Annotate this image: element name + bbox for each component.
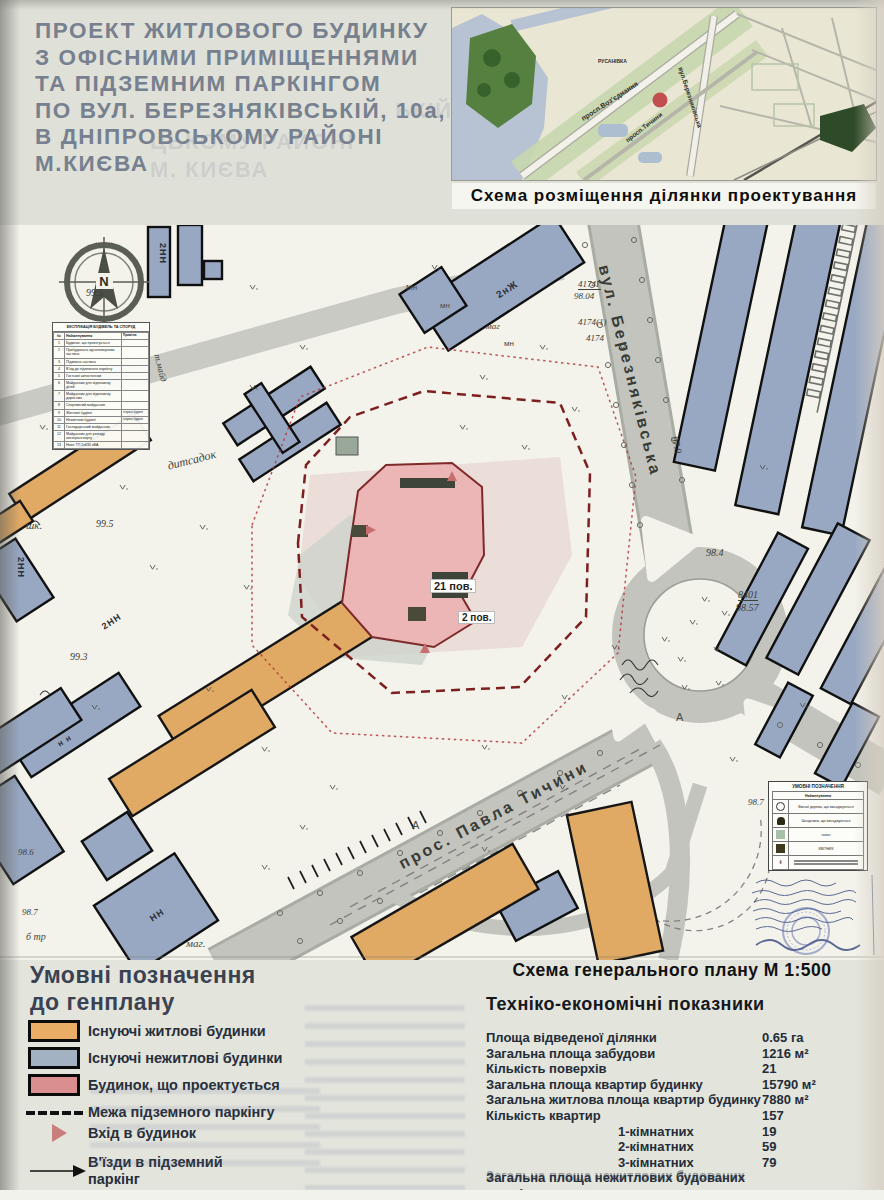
legend-item-label: Існуючі нежитлові будинки (88, 1050, 282, 1067)
explication-cell (122, 340, 149, 347)
tep-row: приміщень (486, 1186, 882, 1200)
explication-row: 8Спортивний майданчик (54, 402, 149, 409)
mini-legend-subtitle: Найменування (772, 791, 864, 800)
map-label: 98.4 (706, 547, 724, 558)
plan-mini-legend: УМОВНІ ПОЗНАЧЕННЯНайменуванняВисокі дере… (768, 781, 868, 871)
mini-legend-row: КВІТНИК (772, 842, 864, 856)
legend-item: В'їзди в підземний паркінг (26, 1154, 263, 1188)
legend-item: Вхід в будинок (26, 1124, 196, 1142)
explication-row: 3Підземна частина (54, 358, 149, 365)
tep-row: Кількість квартир157 (486, 1108, 882, 1124)
explication-cell: Нове ТП 2х630 кВА (65, 442, 122, 449)
tep-row-label: Загальна житлова площа квартир будинку (486, 1092, 762, 1108)
explication-row: 5Гостьові автостоянки (54, 372, 149, 379)
explication-cell: 2 (54, 347, 65, 358)
legend-item-label: Існуючі житлові будинки (88, 1023, 266, 1040)
explication-cell: існуючі будівлі (122, 409, 149, 416)
explication-cell: 12 (54, 430, 65, 441)
map-label: 4174 (586, 333, 604, 343)
explication-row: 9Житлові будівлііснуючі будівлі (54, 409, 149, 416)
map-label: б тр (26, 931, 46, 942)
legend-item-label: Межа землевідведення (88, 1196, 255, 1200)
triangle-symbol (26, 1124, 88, 1142)
explication-cell: 5 (54, 372, 65, 379)
explication-cell: 10 (54, 416, 65, 423)
explication-cell: існуючі будівлі (122, 416, 149, 423)
tep-ghost-print: Загальна площа нежитлових будованих (486, 1168, 745, 1183)
map-label: 98.7 (22, 907, 38, 917)
arrow-symbol (26, 1170, 88, 1172)
flower-icon (773, 842, 789, 855)
explication-row: 1Будинок, що проектується (54, 340, 149, 347)
explication-cell (122, 358, 149, 365)
title-ghost-line: М. КИЄВА (150, 157, 269, 183)
explication-cell: Господарський майданчик (65, 423, 122, 430)
location-map-drawing (452, 8, 876, 180)
legend-item: Межа підземного паркінгу (26, 1104, 274, 1121)
explication-header: №НайменуванняПримітка (54, 333, 149, 340)
explication-cell (122, 423, 149, 430)
legend-item: Існуючі житлові будинки (26, 1020, 266, 1042)
legend-item: Існуючі нежитлові будинки (26, 1047, 282, 1069)
location-minimap: просп.Воз'єднанняпросп.Тичинивул.Березня… (452, 8, 876, 180)
map-label: мн (504, 339, 514, 348)
mini-legend-label: КВІТНИК (789, 846, 863, 852)
tep-row-value: 157 (762, 1108, 784, 1124)
map-label: РУСАНІВКА (598, 58, 627, 64)
shrub-icon (773, 814, 789, 827)
tep-row-value: 19 (762, 1124, 776, 1140)
tep-row-value: 21 (762, 1061, 776, 1077)
explication-title: ЕКСПЛІКАЦІЯ БУДІВЕЛЬ ТА СПОРУД (53, 323, 149, 332)
map-label: 99.3 (70, 651, 88, 662)
tep-row-label: 2-кімнатних (486, 1139, 762, 1155)
legend-heading-line: до генплану (30, 989, 256, 1016)
explication-header-cell: Найменування (65, 333, 122, 340)
map-label: 99.5 (96, 518, 114, 529)
title-ghost-line: ЦЬКОМУ РАЙОНІ (150, 129, 355, 155)
explication-cell (122, 379, 149, 390)
tep-row-label: Загальна площа забудови (486, 1046, 762, 1062)
explication-cell: 11 (54, 423, 65, 430)
map-label: 8401 (738, 589, 758, 601)
explication-row: 13Нове ТП 2х630 кВА (54, 442, 149, 449)
explication-cell: Підземна частина (65, 358, 122, 365)
mini-legend-label: Високі дерева, що висаджуються (789, 804, 863, 810)
tep-title: Техніко-економічні показники (486, 994, 765, 1015)
explication-cell: В'їзд до підземного паркінгу (65, 365, 122, 372)
explication-row: 6Майданчик для відпочинку дітей (54, 379, 149, 390)
map-label: 2НН (16, 557, 26, 578)
tep-row: Загальна площа забудови1216 м² (486, 1046, 882, 1062)
explication-cell: Прибудована одноповерхова частина (65, 347, 122, 358)
map-label: 98.6 (18, 847, 34, 857)
mini-legend-row: газон (772, 828, 864, 842)
explication-cell: 3 (54, 358, 65, 365)
mini-legend-label: газон (789, 832, 863, 838)
title-line: ПРОЕКТ ЖИТЛОВОГО БУДИНКУ (35, 18, 505, 45)
lines-icon: ⇞ (773, 856, 789, 869)
mini-legend-row: Чагарники, що висаджуються (772, 814, 864, 828)
explication-cell (122, 442, 149, 449)
map-label: А (412, 819, 419, 831)
explication-cell (122, 391, 149, 402)
tep-row-label: приміщень (486, 1186, 762, 1200)
explication-row: 2Прибудована одноповерхова частина (54, 347, 149, 358)
dash-symbol (26, 1111, 88, 1115)
map-label: 21 пов. (430, 579, 476, 593)
tep-row-label: 1-кімнатних (486, 1124, 762, 1140)
explication-cell: 4 (54, 365, 65, 372)
tep-row-value: 79 (762, 1155, 776, 1171)
title-line: ТА ПІДЗЕМНИМ ПАРКІНГОМ (35, 71, 505, 98)
tep-row-label: Площа відведеної ділянки (486, 1030, 762, 1046)
explication-row: 12Майданчик для розїзду автотранспорту (54, 430, 149, 441)
explication-cell (122, 365, 149, 372)
tep-row-label: Загальна площа квартир будинку (486, 1077, 762, 1093)
minimap-caption: Схема розміщення ділянки проектування (452, 183, 876, 209)
tep-row-value: 0.65 га (762, 1030, 804, 1046)
explication-cell: 6 (54, 379, 65, 390)
explication-cell: Спортивний майданчик (65, 402, 122, 409)
explication-cell: Майданчик для відпочинку дорослих (65, 391, 122, 402)
tep-row-value: 59 (762, 1139, 776, 1155)
explication-row: 7Майданчик для відпочинку дорослих (54, 391, 149, 402)
map-label: 98.57 (736, 602, 759, 613)
poster-photo: N вул. Березняківськапрос. Павла Тич (0, 0, 884, 1200)
swatch-orange-symbol (26, 1020, 88, 1042)
general-plan: N вул. Березняківськапрос. Павла Тич (0, 225, 884, 960)
explication-cell: Гостьові автостоянки (65, 372, 122, 379)
title-line: З ОФІСНИМИ ПРИМІЩЕННЯМИ (35, 45, 505, 72)
explication-cell (122, 430, 149, 441)
tep-row: Площа відведеної ділянки0.65 га (486, 1030, 882, 1046)
explication-row: 10Нежитлові будівлііснуючі будівлі (54, 416, 149, 423)
legend-item: Межа землевідведення (26, 1196, 255, 1200)
explication-row: 4В'їзд до підземного паркінгу (54, 365, 149, 372)
explication-cell: 1 (54, 340, 65, 347)
explication-cell: 13 (54, 442, 65, 449)
legend-heading: Умовні позначеннядо генплану (30, 962, 256, 1016)
tep-row-value: 15790 м² (762, 1077, 816, 1093)
lawn-icon (773, 828, 789, 841)
site-location-dot (653, 93, 668, 108)
map-label: А (676, 711, 683, 723)
tep-row-label: Кількість поверхів (486, 1061, 762, 1077)
legend-item-label: В'їзди в підземний паркінг (88, 1154, 263, 1188)
legend-item-label: Вхід в будинок (88, 1125, 196, 1142)
mini-legend-label (789, 858, 863, 867)
legend-item-label: Будинок, що проектується (88, 1077, 280, 1094)
map-label: мн (440, 301, 450, 310)
mini-legend-row: ⇞ (772, 856, 864, 870)
explication-cell: Житлові будівлі (65, 409, 122, 416)
explication-row: 11Господарський майданчик (54, 423, 149, 430)
legend-heading-line: Умовні позначення (30, 962, 256, 989)
map-label: маг. (186, 937, 205, 949)
explication-cell (122, 402, 149, 409)
explication-cell (122, 347, 149, 358)
mini-legend-row: Високі дерева, що висаджуються (772, 800, 864, 814)
tep-row: 1-кімнатних19 (486, 1124, 882, 1140)
tep-row-label: Кількість квартир (486, 1108, 762, 1124)
legend-item-label: Межа підземного паркінгу (88, 1104, 274, 1121)
map-label: 98.7 (748, 797, 764, 807)
tep-row: Кількість поверхів21 (486, 1061, 882, 1077)
explication-cell: Майданчик для розїзду автотранспорту (65, 430, 122, 441)
tep-row: Загальна площа квартир будинку15790 м² (486, 1077, 882, 1093)
tep-row: 2-кімнатних59 (486, 1139, 882, 1155)
explication-grid: №НайменуванняПримітка1Будинок, що проект… (53, 332, 149, 449)
explication-header-cell: № (54, 333, 65, 340)
explication-cell: Будинок, що проектується (65, 340, 122, 347)
explication-table: ЕКСПЛІКАЦІЯ БУДІВЕЛЬ ТА СПОРУД№Найменува… (52, 322, 150, 450)
tep-row: Загальна житлова площа квартир будинку78… (486, 1092, 882, 1108)
map-label: Мн (406, 283, 417, 292)
map-label: маг (486, 321, 500, 331)
mini-legend-label: Чагарники, що висаджуються (789, 818, 863, 824)
tep-row-value: 7880 м² (762, 1092, 808, 1108)
map-label: 4174(1) (578, 317, 607, 327)
explication-header-cell: Примітка (122, 333, 149, 340)
swatch-pink-symbol (26, 1074, 88, 1096)
map-label: 2НН (158, 243, 168, 264)
explication-cell: 9 (54, 409, 65, 416)
map-label: 2 пов. (458, 611, 495, 624)
explication-cell: 7 (54, 391, 65, 402)
legend-item: Будинок, що проектується (26, 1074, 280, 1096)
map-label: 99.5 (86, 287, 104, 298)
explication-cell: Нежитлові будівлі (65, 416, 122, 423)
map-label: шк. (26, 519, 42, 531)
genplan-caption: Схема генерального плану М 1:500 (470, 960, 874, 981)
map-label: 98.04 (574, 291, 594, 301)
swatch-blue-symbol (26, 1047, 88, 1069)
explication-cell: 8 (54, 402, 65, 409)
tree-icon (773, 800, 789, 813)
explication-cell (122, 372, 149, 379)
map-label: 4174Г (578, 279, 601, 290)
section-seam (0, 956, 884, 958)
tep-row-value: 1216 м² (762, 1046, 808, 1062)
explication-cell: Майданчик для відпочинку дітей (65, 379, 122, 390)
mini-legend-title: УМОВНІ ПОЗНАЧЕННЯ (769, 782, 867, 791)
